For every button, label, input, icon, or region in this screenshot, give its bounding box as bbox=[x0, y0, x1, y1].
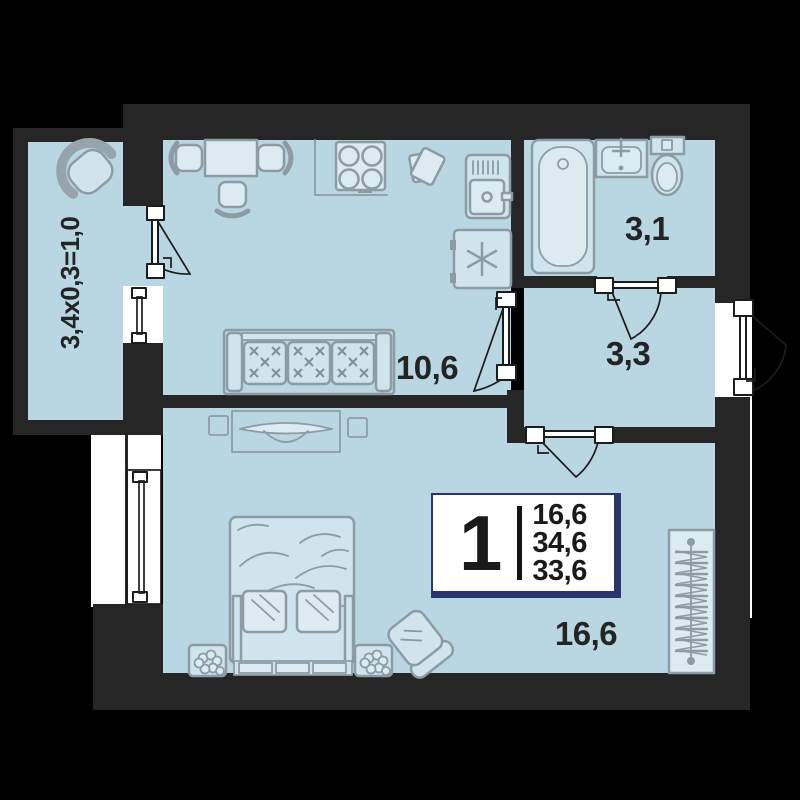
wall-left-upper bbox=[123, 140, 163, 206]
wall-kitchen-hall-stub bbox=[507, 390, 524, 443]
wall-right-upper bbox=[715, 140, 750, 303]
toilet-button bbox=[662, 140, 672, 150]
nightstand-right bbox=[355, 645, 392, 676]
fridge bbox=[450, 230, 511, 288]
wall-balcony-bottom bbox=[13, 420, 123, 435]
door-hinge bbox=[595, 278, 613, 293]
sofa-back bbox=[242, 333, 376, 340]
door-leaf bbox=[152, 220, 158, 264]
door-leaf bbox=[544, 431, 595, 437]
bed-rail bbox=[345, 596, 353, 662]
fridge-hinge bbox=[450, 273, 456, 283]
kitchen-sink-unit bbox=[466, 155, 512, 218]
door-leaf bbox=[740, 316, 746, 379]
headboard-panel bbox=[276, 663, 309, 673]
bed bbox=[230, 517, 354, 675]
sink-basin bbox=[470, 180, 504, 214]
wall-left-mid bbox=[123, 343, 163, 435]
headboard-panel bbox=[313, 663, 346, 673]
door-hinge bbox=[526, 427, 544, 443]
balcony-dimension-label: 3,4х0,3=1,0 bbox=[54, 183, 86, 383]
total-area-value: 34,6 bbox=[532, 529, 586, 557]
door-hinge bbox=[734, 300, 753, 316]
reduced-area-value: 33,6 bbox=[532, 557, 586, 585]
door-leaf bbox=[503, 307, 509, 365]
sofa-arm bbox=[227, 333, 242, 391]
wall-kitchen-bath bbox=[511, 140, 524, 287]
wall-hall-bedroom-right bbox=[604, 427, 715, 443]
bed-rail bbox=[233, 596, 241, 662]
rooms-count: 1 bbox=[459, 504, 502, 582]
bathtub bbox=[532, 140, 594, 273]
door-hinge bbox=[497, 365, 516, 380]
floorplan: 3,4х0,3=1,0 10,6 3,1 3,3 16,6 1 16,6 34,… bbox=[0, 0, 800, 800]
toilet-bowl-inner bbox=[657, 163, 677, 191]
fridge-hinge bbox=[450, 240, 456, 250]
wall-bath-hall-left bbox=[511, 276, 597, 288]
door-hinge bbox=[658, 278, 676, 293]
door-leaf bbox=[611, 282, 659, 288]
floorplan-drawing bbox=[0, 0, 800, 800]
badge-divider bbox=[517, 506, 522, 580]
wall-kitchen-bedroom bbox=[163, 395, 508, 408]
door-hinge bbox=[595, 427, 613, 443]
kitchen-living-area-label: 10,6 bbox=[377, 349, 477, 387]
nightstand-left bbox=[189, 645, 226, 676]
door-hinge bbox=[497, 292, 516, 307]
headboard-panel bbox=[239, 663, 272, 673]
bathroom-area-label: 3,1 bbox=[597, 210, 697, 248]
rod-end bbox=[687, 657, 695, 665]
hallway-area-label: 3,3 bbox=[578, 335, 678, 373]
apartment-info-badge: 1 16,6 34,6 33,6 bbox=[431, 493, 621, 598]
toilet bbox=[651, 137, 684, 195]
door-hinge bbox=[147, 206, 164, 220]
wall-balcony-top bbox=[13, 128, 125, 142]
wardrobe bbox=[669, 530, 714, 673]
dining-table bbox=[205, 140, 257, 176]
hob-handle bbox=[358, 189, 372, 193]
wall-balcony-left bbox=[13, 128, 28, 435]
faucet bbox=[502, 193, 512, 200]
basin-drain bbox=[619, 166, 624, 171]
area-values: 16,6 34,6 33,6 bbox=[532, 501, 586, 585]
dining-chair-right bbox=[258, 145, 284, 171]
dining-chair-bottom bbox=[219, 182, 246, 207]
living-area-value: 16,6 bbox=[532, 501, 586, 529]
window-kitchen bbox=[123, 286, 163, 343]
washbasin bbox=[596, 139, 647, 177]
door-hinge bbox=[147, 264, 164, 278]
rod-end bbox=[687, 538, 695, 546]
sofa bbox=[224, 330, 394, 394]
wall-right-lower bbox=[715, 397, 750, 710]
wall-top bbox=[123, 104, 750, 140]
bedroom-area-label: 16,6 bbox=[536, 615, 636, 653]
dining-chair-left bbox=[176, 145, 202, 171]
tub-inner bbox=[539, 147, 587, 266]
